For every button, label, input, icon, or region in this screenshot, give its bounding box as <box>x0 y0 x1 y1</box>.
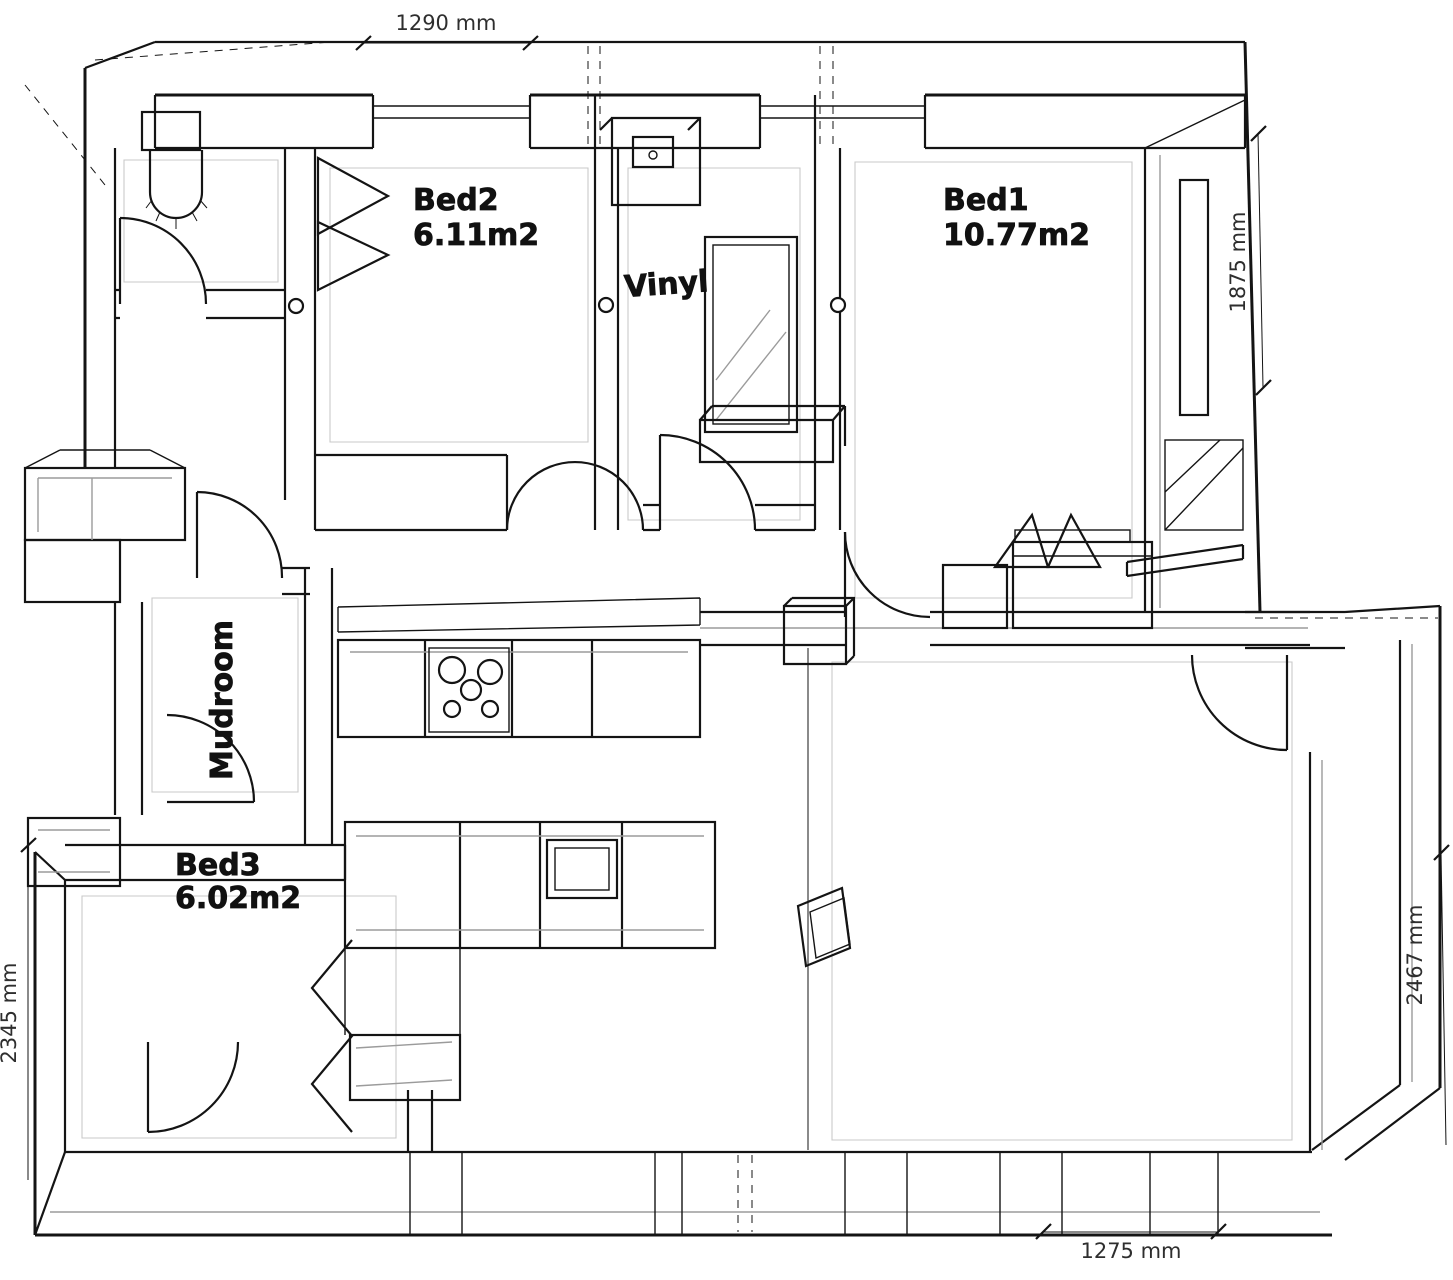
door-wedge <box>318 158 388 234</box>
dim-label-left: 2345 mm <box>0 962 21 1063</box>
dimension-right-lower: 2467 mm <box>1403 845 1449 1145</box>
bed2-bottom-wall <box>315 455 815 530</box>
mirror-shine <box>716 310 786 420</box>
bay-inner <box>38 478 172 540</box>
bed2-door <box>507 462 643 530</box>
dimension-bottom: 1275 mm <box>1036 1224 1226 1263</box>
fixtures <box>25 112 1243 1100</box>
dashed-wall-mark <box>820 46 833 146</box>
door-arc <box>1192 655 1287 750</box>
burner <box>444 701 460 717</box>
halfwall-post <box>784 598 854 664</box>
door-arc <box>148 1042 238 1132</box>
counter-run <box>345 822 715 948</box>
lamp-face <box>633 137 673 167</box>
burner <box>482 701 498 717</box>
wardrobe-box <box>1165 440 1243 530</box>
burner <box>461 680 481 700</box>
room-labels: Bed2 6.11m2 Bed1 10.77m2 Vinyl Mudroom B… <box>175 183 1090 916</box>
interior-walls <box>65 95 1310 1152</box>
wall-bottom-pillars <box>410 1152 1218 1235</box>
dim-line <box>1441 852 1446 1145</box>
burner <box>439 657 465 683</box>
burner <box>478 660 502 684</box>
room-label-bed1-name: Bed1 <box>943 183 1029 218</box>
room-label-mudroom: Mudroom <box>205 620 240 780</box>
dim-label-right-upper: 1875 mm <box>1226 211 1250 312</box>
closet-connect <box>345 948 460 1035</box>
entry-door <box>1192 655 1287 750</box>
floor-line <box>832 662 1292 1140</box>
mudroom-right-wall <box>305 568 332 845</box>
stove-icon <box>439 657 502 717</box>
sink-icon <box>547 840 617 898</box>
kitchen-wall-cabinet <box>338 598 700 632</box>
room-label-bed3-name: Bed3 <box>175 848 261 883</box>
bed2-left-wall <box>285 148 315 530</box>
room-label-bed2-area: 6.11m2 <box>413 218 539 253</box>
sink-outer <box>547 840 617 898</box>
headboard-shelf <box>1015 530 1130 542</box>
room-label-bed1-area: 10.77m2 <box>943 218 1090 253</box>
toilet-door <box>120 218 206 304</box>
dimension-left: 2345 mm <box>0 838 36 1180</box>
lamp-housing <box>600 118 700 205</box>
dim-label-top: 1290 mm <box>395 11 496 35</box>
wall-top-edge <box>85 42 1245 68</box>
bed3-door <box>148 1042 238 1132</box>
bay-box <box>25 468 185 540</box>
bed2-closet-doors <box>318 158 388 290</box>
bed3-window-box <box>28 818 120 886</box>
wall-panel-icon <box>798 888 850 966</box>
window-box <box>28 818 120 886</box>
bed3-closet-icon <box>350 1035 460 1100</box>
kitchen-counter-bottom <box>345 822 715 948</box>
dashed-wall-mark <box>738 1155 752 1232</box>
bifold-zigzag <box>312 940 352 1132</box>
room-label-bed2-name: Bed2 <box>413 183 499 218</box>
counter-topface <box>356 836 704 930</box>
kitchen-counter-top <box>338 640 700 737</box>
floor-line <box>82 896 396 1138</box>
door-arc <box>197 492 282 578</box>
window-sill-top <box>373 106 925 118</box>
room-label-bed3-area: 6.02m2 <box>175 881 301 916</box>
floor-plan-svg: 1290 mm 1875 mm 2467 mm 2345 mm 1275 mm … <box>0 0 1453 1280</box>
porch-bottom-corner <box>1312 1085 1440 1160</box>
floor-outline-lines <box>82 160 1292 1140</box>
toilet-icon <box>142 112 207 229</box>
wall-marker <box>599 298 613 312</box>
wardrobe-hatch <box>1165 440 1243 530</box>
door-arc <box>660 435 755 530</box>
mirror-cabinet-icon <box>700 237 845 462</box>
bed-frame <box>1013 542 1152 628</box>
door-arc <box>507 462 643 530</box>
bed3-bifold-doors <box>312 940 352 1132</box>
closet-shelf-lines <box>356 1042 452 1086</box>
dim-line <box>1258 133 1263 387</box>
door-arc <box>845 532 930 617</box>
ceiling-lamp-icon <box>600 118 700 205</box>
bay-window-icon <box>25 450 185 602</box>
counter-run <box>338 640 700 737</box>
window-niche-right <box>1180 180 1208 415</box>
toilet-wall <box>115 290 285 318</box>
floor-line <box>628 168 800 520</box>
mirror-base <box>700 406 845 462</box>
wall-bottom-corner <box>35 1152 65 1235</box>
dimension-top: 1290 mm <box>356 11 538 50</box>
floor-plan-canvas: 1290 mm 1875 mm 2467 mm 2345 mm 1275 mm … <box>0 0 1453 1280</box>
wall-marker <box>289 299 303 313</box>
bay-slant <box>25 450 185 468</box>
stove-panel <box>429 648 509 732</box>
room-label-vinyl: Vinyl <box>623 264 709 305</box>
door-wedge <box>318 222 388 290</box>
bed1-door <box>845 532 930 617</box>
dim-label-bottom: 1275 mm <box>1080 1239 1181 1263</box>
wall-marker <box>831 298 845 312</box>
lamp-dot <box>649 151 657 159</box>
mudroom-top-door <box>197 492 282 578</box>
door-arc <box>120 218 206 304</box>
dim-label-right-lower: 2467 mm <box>1403 904 1427 1005</box>
toilet-tank <box>142 112 200 150</box>
sink-inner <box>555 848 609 890</box>
mudroom-left-wall <box>115 602 142 815</box>
hall-door <box>660 435 755 530</box>
wall-right-topface <box>1145 100 1245 148</box>
wardrobe-icon <box>1165 440 1243 530</box>
nightstand <box>943 565 1007 628</box>
wall-left-lower-inner <box>35 852 65 1152</box>
bay-box <box>25 540 120 602</box>
wall-right-outer <box>1245 42 1260 612</box>
